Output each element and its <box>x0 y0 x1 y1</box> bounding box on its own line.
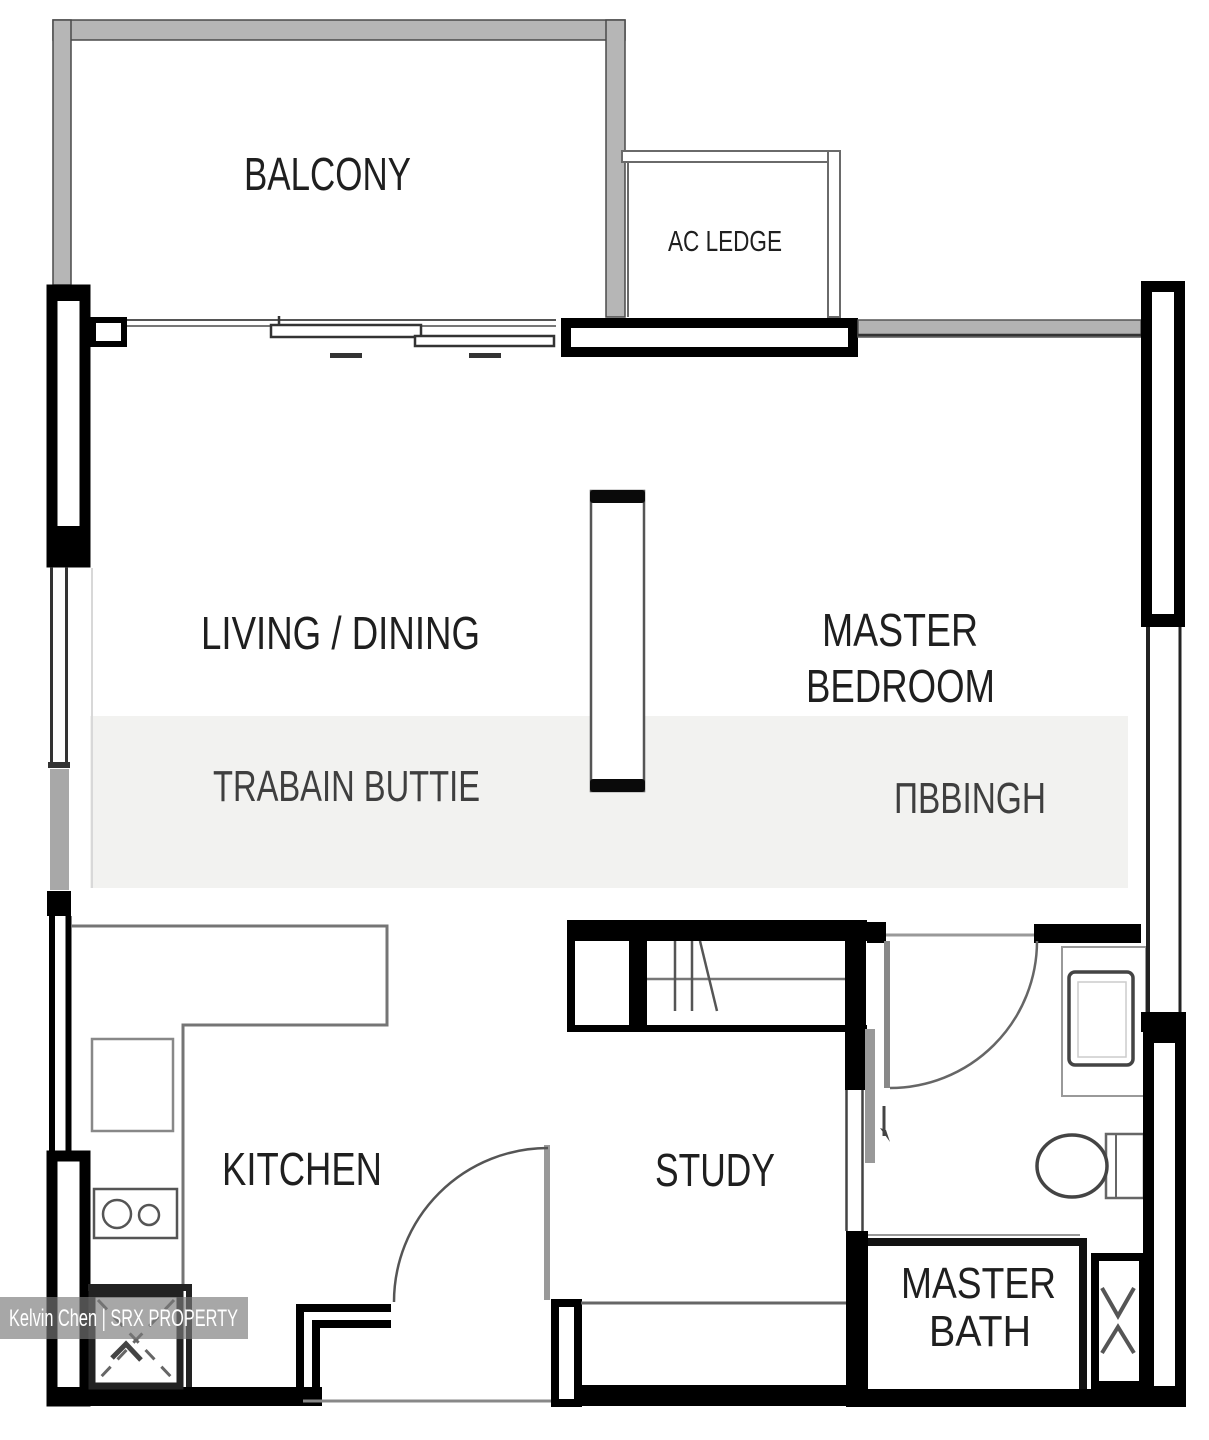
svg-text:MASTER: MASTER <box>901 1259 1056 1308</box>
svg-text:TRABAIN BUTTIE: TRABAIN BUTTIE <box>213 762 480 811</box>
svg-text:ПBBINGH: ПBBINGH <box>894 774 1046 823</box>
svg-text:MASTER: MASTER <box>822 604 978 656</box>
svg-text:STUDY: STUDY <box>655 1144 775 1196</box>
svg-text:AC LEDGE: AC LEDGE <box>668 226 782 258</box>
svg-text:LIVING / DINING: LIVING / DINING <box>201 607 480 659</box>
svg-text:BEDROOM: BEDROOM <box>806 660 995 712</box>
svg-text:KITCHEN: KITCHEN <box>222 1143 382 1195</box>
svg-text:BATH: BATH <box>929 1307 1031 1356</box>
svg-text:BALCONY: BALCONY <box>244 148 411 200</box>
svg-text:Kelvin Chen | SRX PROPERTY: Kelvin Chen | SRX PROPERTY <box>9 1305 238 1332</box>
